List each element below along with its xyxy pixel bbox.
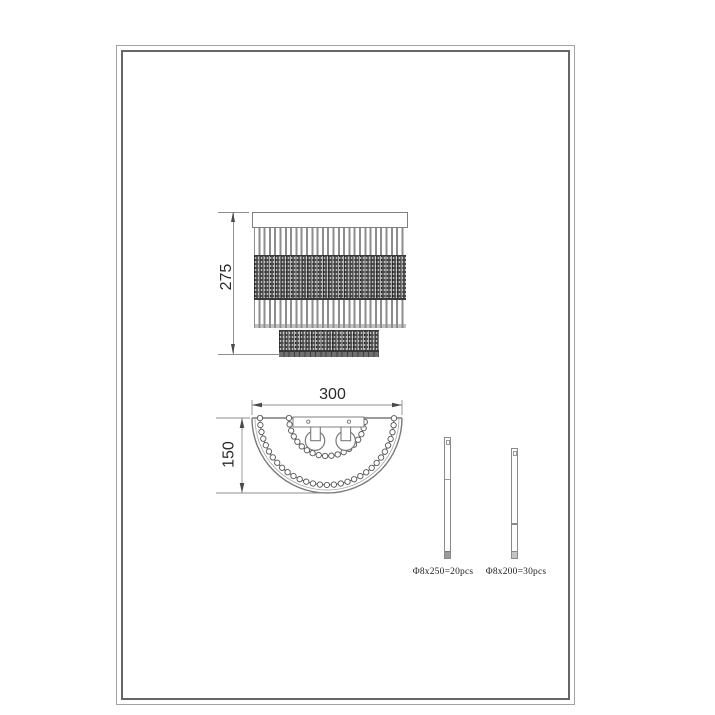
drawing-frame-outer xyxy=(116,45,575,705)
crystal-band-outer xyxy=(254,255,406,300)
technical-drawing-page: 275 300 xyxy=(0,0,715,715)
rod-detail-200-bottom-cap xyxy=(512,551,517,558)
rod-caps-inner xyxy=(279,352,379,357)
dim-300-label: 300 xyxy=(319,386,346,403)
rod-detail-250-top-cap xyxy=(446,440,450,445)
dim-275-extension-bottom xyxy=(218,354,280,355)
dim-275-label: 275 xyxy=(218,255,238,299)
dim-300-arrow-left xyxy=(252,403,262,408)
rod-detail-200 xyxy=(511,448,518,559)
dim-150-arrow-down xyxy=(240,483,245,493)
dim-275-arrow-down xyxy=(231,344,235,354)
rod-detail-200-top-cap xyxy=(513,451,517,456)
bead-ring-outer-fill xyxy=(260,418,394,485)
rod-detail-200-joint xyxy=(512,523,517,525)
dim-150-arrow-up xyxy=(240,418,245,428)
dim-150-label: 150 xyxy=(221,441,238,468)
mounting-bracket xyxy=(293,417,364,427)
rod-detail-250-joint xyxy=(445,479,450,480)
rod-detail-250 xyxy=(444,437,451,559)
rod-detail-250-bottom-cap xyxy=(445,551,450,558)
dim-300-arrow-right xyxy=(392,403,402,408)
drawing-frame-inner xyxy=(121,50,570,700)
screw-hole-left xyxy=(307,420,310,423)
crystal-band-inner xyxy=(279,330,379,352)
mounting-plate xyxy=(252,212,408,228)
bead-thread-outer xyxy=(260,418,394,485)
rod-tips-outer xyxy=(254,324,406,328)
dim-275-arrow-up xyxy=(231,212,235,222)
rod-detail-200-label: Φ8x200=30pcs xyxy=(471,567,561,577)
screw-hole-right xyxy=(347,420,350,423)
bead-ring-outer xyxy=(260,418,394,485)
top-view: 300 150 xyxy=(208,382,423,514)
